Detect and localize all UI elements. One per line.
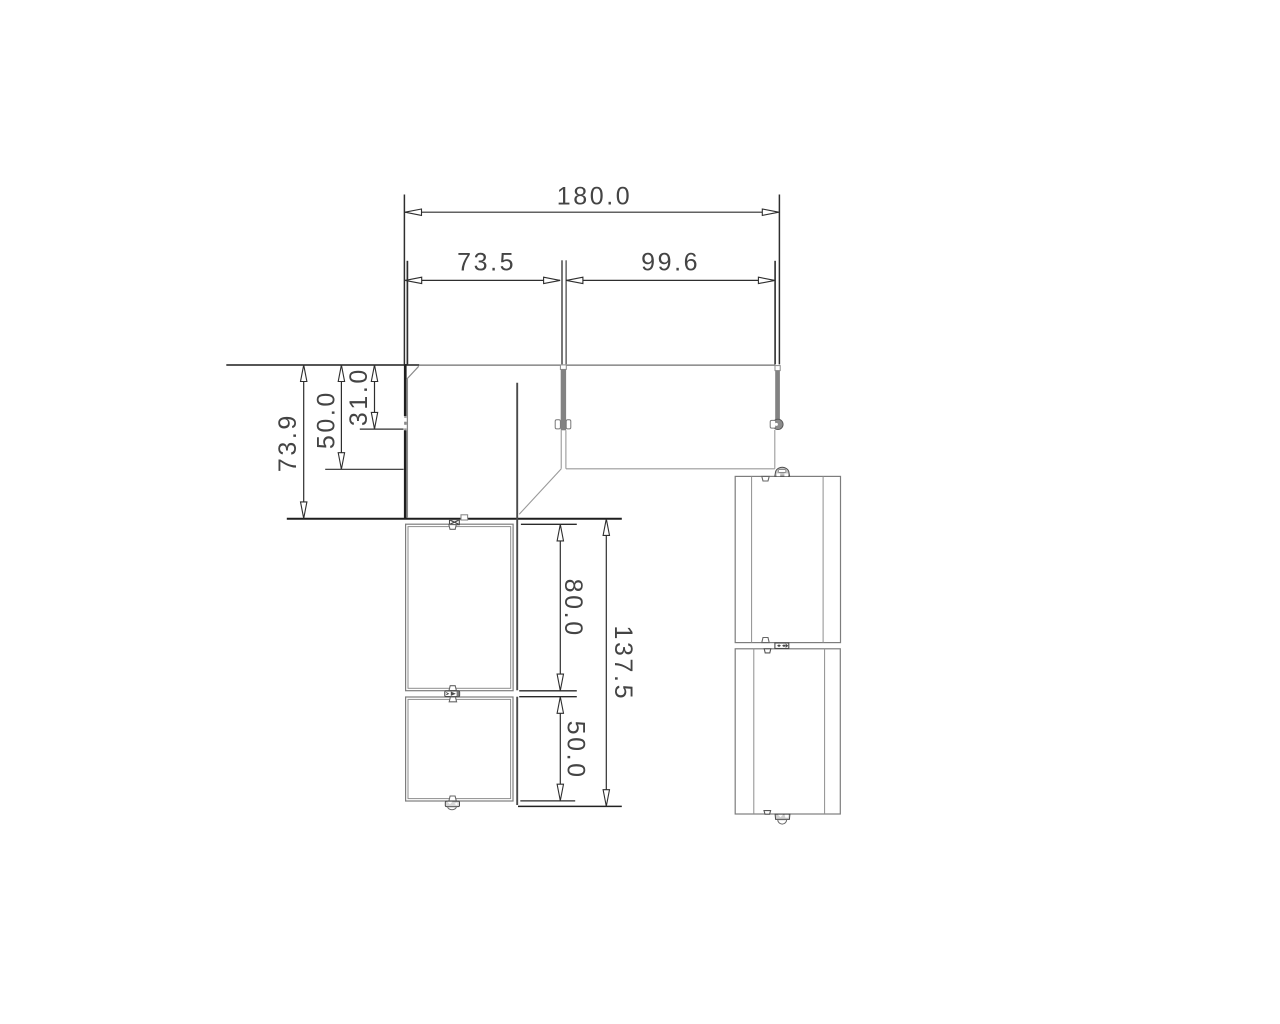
svg-text:50.0: 50.0 — [313, 390, 341, 449]
svg-text:137.5: 137.5 — [609, 626, 637, 702]
svg-text:99.6: 99.6 — [641, 249, 700, 277]
svg-text:31.0: 31.0 — [345, 367, 373, 426]
svg-text:50.0: 50.0 — [561, 721, 589, 780]
svg-text:80.0: 80.0 — [559, 579, 587, 638]
svg-text:73.5: 73.5 — [457, 249, 516, 277]
svg-text:180.0: 180.0 — [557, 183, 633, 211]
svg-text:73.9: 73.9 — [274, 413, 302, 472]
